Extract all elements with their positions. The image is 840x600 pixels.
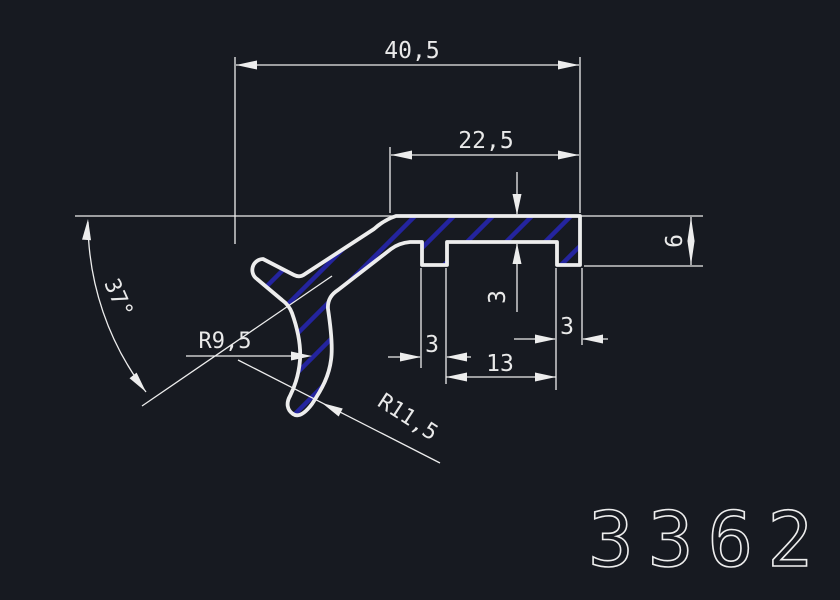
cad-drawing-3362: 40,5 22,5 6 3 3 13 3 37° R9,5 R11,5 3362 [0, 0, 840, 600]
label-tooth-spacing: 13 [486, 351, 514, 377]
label-flange-width: 22,5 [458, 128, 513, 154]
label-end-height: 6 [662, 234, 688, 248]
label-right-tooth: 3 [560, 314, 574, 340]
label-overall-width: 40,5 [384, 38, 439, 64]
cad-canvas: 40,5 22,5 6 3 3 13 3 37° R9,5 R11,5 3362 [0, 0, 840, 600]
label-radius-inner: R9,5 [199, 329, 252, 354]
title-block: 3362 [588, 495, 827, 584]
label-left-tooth: 3 [425, 332, 439, 358]
label-wall-thickness: 3 [485, 290, 511, 304]
profile-number-text: 3362 [588, 495, 827, 584]
